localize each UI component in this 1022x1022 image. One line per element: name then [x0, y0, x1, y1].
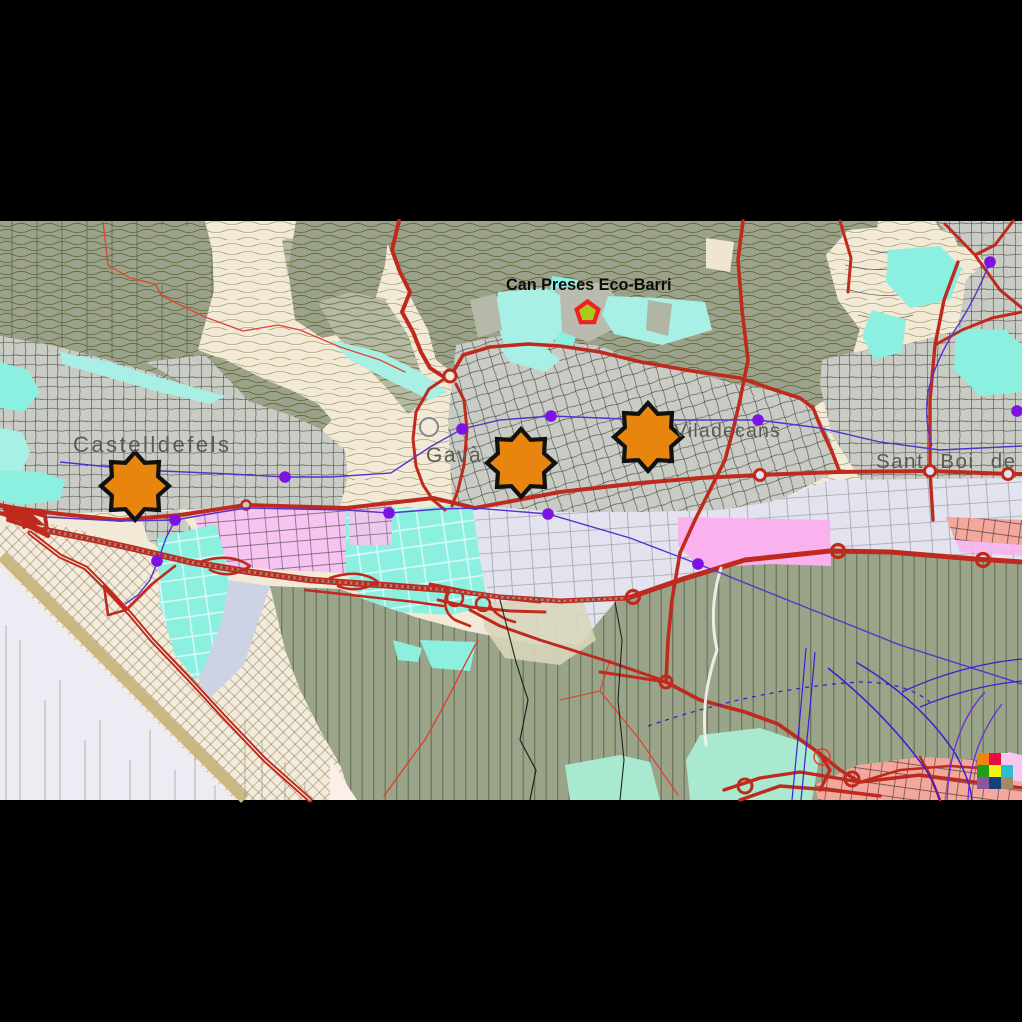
svg-text:Castelldefels: Castelldefels	[73, 432, 231, 457]
svg-text:Gavà: Gavà	[426, 444, 482, 467]
svg-text:Can Preses Eco-Barri: Can Preses Eco-Barri	[506, 276, 672, 294]
svg-text:Viladecans: Viladecans	[674, 420, 781, 442]
svg-text:Sant Boi de: Sant Boi de	[876, 450, 1017, 473]
